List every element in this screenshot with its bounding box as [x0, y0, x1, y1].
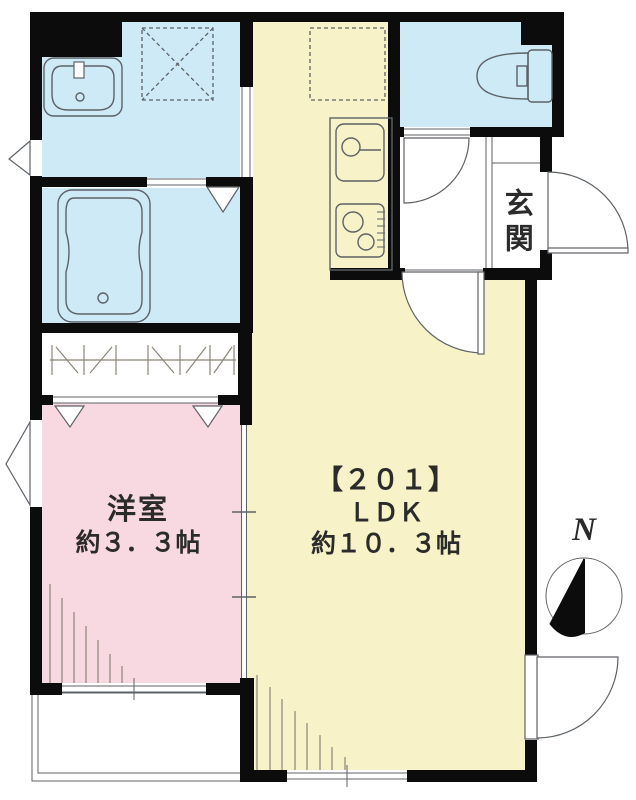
bedroom-window-gap — [30, 420, 42, 507]
ldk-room-size: 約１０．３帖 — [296, 529, 476, 560]
balcony — [32, 693, 245, 781]
kitchen-passage-floor — [247, 268, 330, 280]
entrance-door-leaf — [548, 248, 628, 253]
compass-north-label: N — [560, 510, 608, 551]
kitchen-floor — [253, 22, 388, 268]
compass — [546, 558, 622, 636]
toilet-door-swing — [404, 138, 469, 203]
unit-number: 【２０１】 — [296, 464, 476, 498]
western-room-size: 約３．３帖 — [48, 528, 228, 559]
floor-plan: 【２０１】 ＬＤＫ 約１０．３帖 洋室 約３．３帖 玄関 N — [0, 0, 636, 800]
ldk-exterior-door-swing — [537, 657, 618, 738]
ldk-exterior-door-frame — [525, 655, 538, 739]
entrance-door-swing — [548, 172, 628, 252]
entrance-label: 玄関 — [498, 178, 534, 268]
floor-plan-drawing — [0, 0, 636, 800]
washroom-window-icon — [9, 141, 30, 175]
bedroom-window-icon — [6, 422, 30, 505]
washroom-window-gap — [30, 140, 42, 176]
ldk-label: 【２０１】 ＬＤＫ 約１０．３帖 — [296, 464, 476, 560]
ldk-room-name: ＬＤＫ — [296, 498, 476, 529]
western-room-name: 洋室 — [48, 492, 228, 528]
ldk-door-leaf — [478, 272, 484, 354]
western-room-label: 洋室 約３．３帖 — [48, 492, 228, 560]
closet-hanger-icon — [50, 345, 236, 375]
